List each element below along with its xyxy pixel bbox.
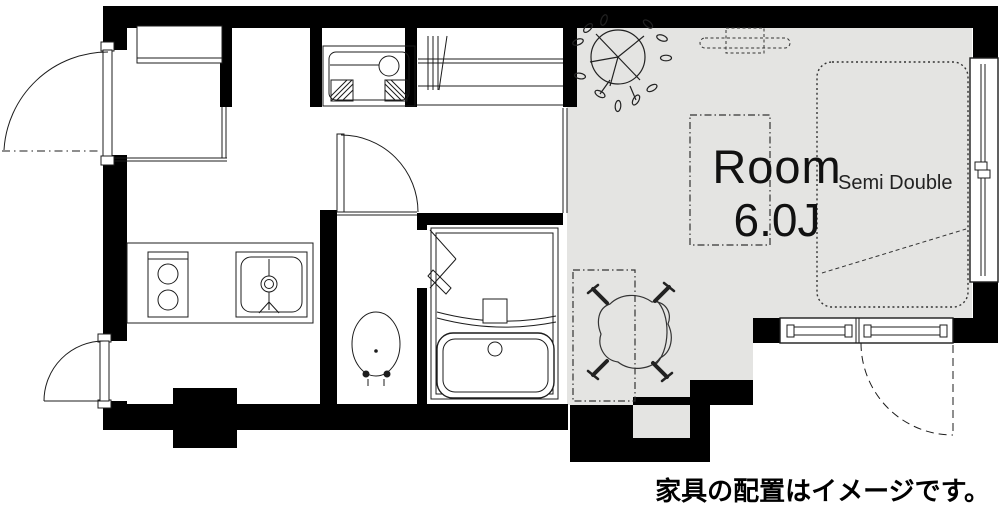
balcony-window — [780, 318, 953, 435]
service-door — [44, 334, 111, 408]
folding-door — [428, 230, 456, 294]
floorplan-svg: Room 6.0J Semi Double 家具の配置はイメージです。 — [0, 0, 1000, 507]
toilet-door — [337, 134, 418, 215]
bed-size-label: Semi Double — [838, 172, 953, 194]
room-label: Room — [712, 140, 841, 193]
washing-machine-pan — [323, 46, 415, 106]
bathtub — [437, 333, 554, 398]
closet-hanger-pipe — [417, 36, 563, 105]
floor-plan: Room 6.0J Semi Double 家具の配置はイメージです。 — [0, 0, 1000, 507]
kitchen-counter — [127, 243, 313, 323]
toilet — [352, 312, 400, 386]
shoe-cabinet — [137, 26, 222, 63]
sliding-window — [970, 58, 998, 282]
entry-step-line — [113, 107, 227, 161]
furniture-disclaimer: 家具の配置はイメージです。 — [655, 476, 990, 506]
bath-counter-edge — [437, 299, 556, 327]
room-size-label: 6.0J — [734, 194, 821, 246]
hall-room-boundary — [563, 108, 567, 213]
entry-door — [2, 42, 114, 165]
